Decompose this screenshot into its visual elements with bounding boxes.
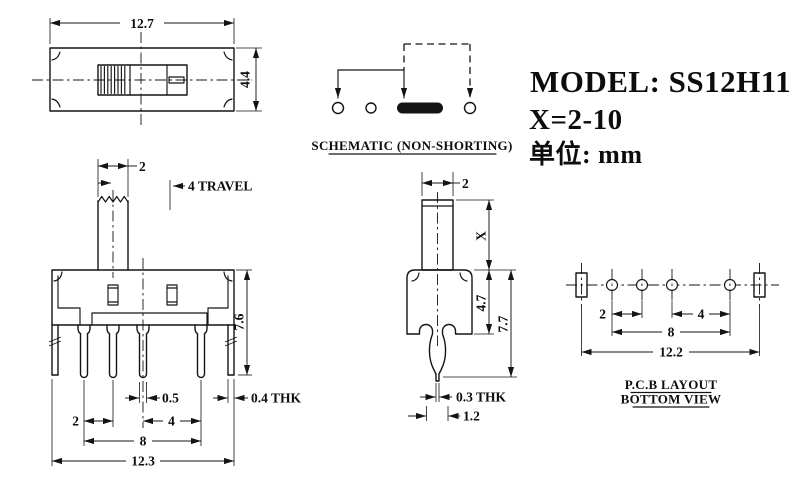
front-view: 2 4 TRAVEL 7.6 0.5 0.4 THK 2 4 (49, 159, 302, 469)
mount-leg-right (225, 325, 237, 375)
top-view: 12.7 4.4 (32, 16, 262, 126)
model-text: MODEL: SS12H11 (530, 64, 791, 99)
rivet-right (167, 285, 177, 305)
schematic-caption: SCHEMATIC (NON-SHORTING) (311, 138, 512, 153)
pcb-caption-line1: P.C.B LAYOUT (625, 377, 718, 392)
dim-label-top-width: 12.7 (130, 16, 154, 31)
pin-1 (78, 325, 90, 378)
pcb-layout-view: 2 4 8 12.2 P.C.B LAYOUT BOTTOM VIEW (566, 263, 779, 407)
pin-4 (195, 325, 207, 378)
engineering-drawing-page: 12.7 4.4 SCHEMATIC (NON-SHORTING) MODEL:… (0, 0, 800, 480)
dim-label-body-height: 7.6 (232, 313, 247, 330)
rivet-left (108, 285, 118, 305)
dim-label-knob-height: X (474, 231, 489, 241)
terminal-1 (333, 103, 344, 114)
x-range-text: X=2-10 (529, 104, 623, 136)
dim-label-body-height-side: 4.7 (474, 294, 489, 311)
terminal-3 (465, 103, 476, 114)
knob-knurl (101, 67, 125, 94)
dim-label-pitch-left-pcb: 2 (599, 307, 606, 322)
travel-note-label: 4 TRAVEL (188, 179, 252, 194)
pcb-caption-line2: BOTTOM VIEW (621, 392, 722, 407)
dim-label-overall-width-front: 12.3 (131, 454, 155, 469)
schematic-view: SCHEMATIC (NON-SHORTING) (311, 44, 512, 154)
title-block: MODEL: SS12H11 X=2-10 单位: mm (529, 64, 791, 169)
dim-label-pitch-left-front: 2 (72, 414, 79, 429)
dim-label-knob-width-front: 2 (139, 159, 146, 174)
dim-label-knob-width-side: 2 (462, 176, 469, 191)
drawing-canvas: 12.7 4.4 SCHEMATIC (NON-SHORTING) MODEL:… (0, 0, 800, 480)
dim-label-pin-span-pcb: 8 (668, 325, 675, 340)
dim-label-overall-width-pcb: 12.2 (659, 345, 683, 360)
terminal-2 (366, 103, 376, 113)
dim-label-pin-span-front: 8 (140, 434, 147, 449)
dim-label-pin-width-front: 0.5 (162, 391, 179, 406)
common-contact (397, 103, 443, 114)
dim-label-leg-thickness: 0.4 THK (251, 391, 302, 406)
pin-2 (107, 325, 119, 378)
dim-label-overall-height-side: 7.7 (496, 315, 511, 332)
dim-label-top-height: 4.4 (238, 71, 253, 88)
side-view: 2 X 4.7 7.7 0.3 THK 1.2 (407, 172, 517, 424)
dim-label-pitch-right-pcb: 4 (698, 307, 705, 322)
dim-label-pin-thickness: 0.3 THK (456, 390, 507, 405)
dim-label-pin-width-side: 1.2 (463, 409, 480, 424)
unit-text: 单位: mm (529, 139, 642, 169)
mount-leg-left (49, 325, 61, 375)
dim-label-pitch-right-front: 4 (168, 414, 175, 429)
